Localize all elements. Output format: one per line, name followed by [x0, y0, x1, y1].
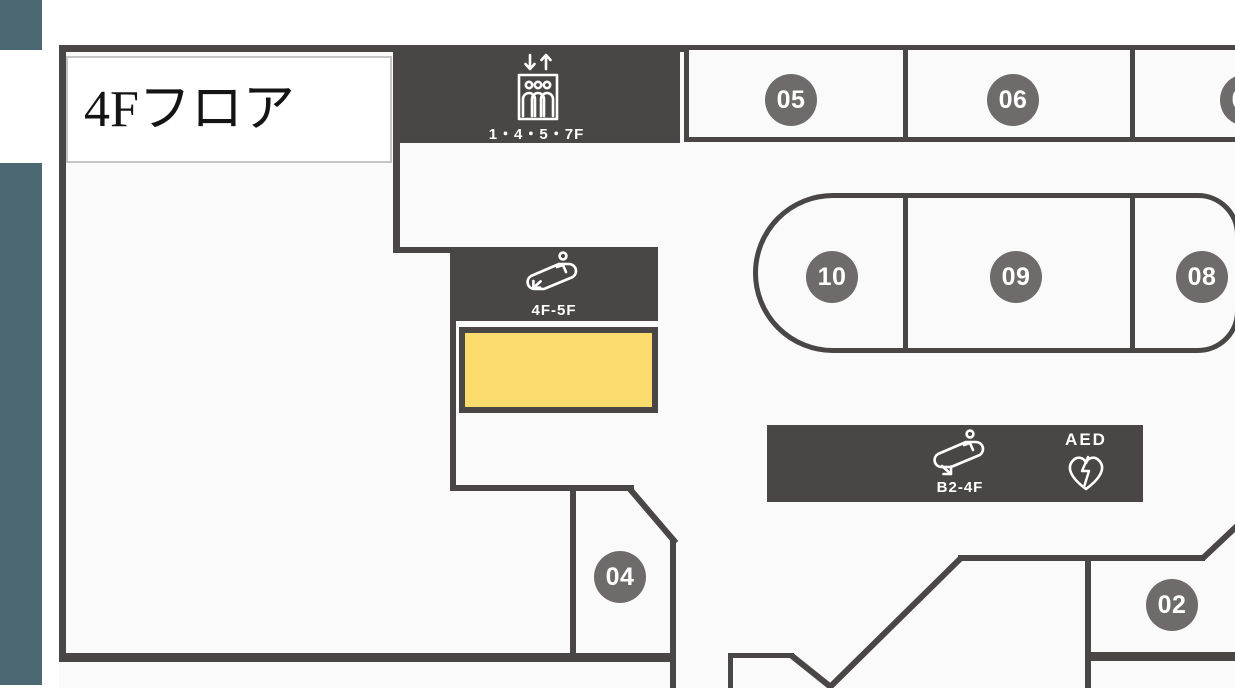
area-badge-09[interactable]: 09	[990, 251, 1042, 303]
floor-title-box: 4Fフロア	[66, 56, 392, 163]
escalator-down-icon	[928, 428, 994, 480]
area-badge-02[interactable]: 02	[1146, 579, 1198, 631]
page-title: 4Fフロア	[68, 84, 295, 136]
elevator-floors-label: 1・4・5・7F	[393, 123, 680, 144]
aed-label: AED	[1046, 430, 1126, 450]
area-badge-04[interactable]: 04	[594, 551, 646, 603]
escalator-lower-floors-label: B2-4F	[900, 479, 1020, 496]
area-badge-10[interactable]: 10	[806, 251, 858, 303]
elevator-icon	[506, 52, 570, 122]
aed-icon	[1064, 449, 1108, 493]
area-badge-08[interactable]: 08	[1176, 251, 1228, 303]
floor-map-4f: 4Fフロア 1・4・5・7F 4F-5F	[0, 0, 1235, 688]
area-badge-05[interactable]: 05	[765, 74, 817, 126]
area-badge-06[interactable]: 06	[987, 74, 1039, 126]
escalator-upper-floors-label: 4F-5F	[450, 302, 658, 319]
escalator-up-icon	[521, 250, 587, 302]
